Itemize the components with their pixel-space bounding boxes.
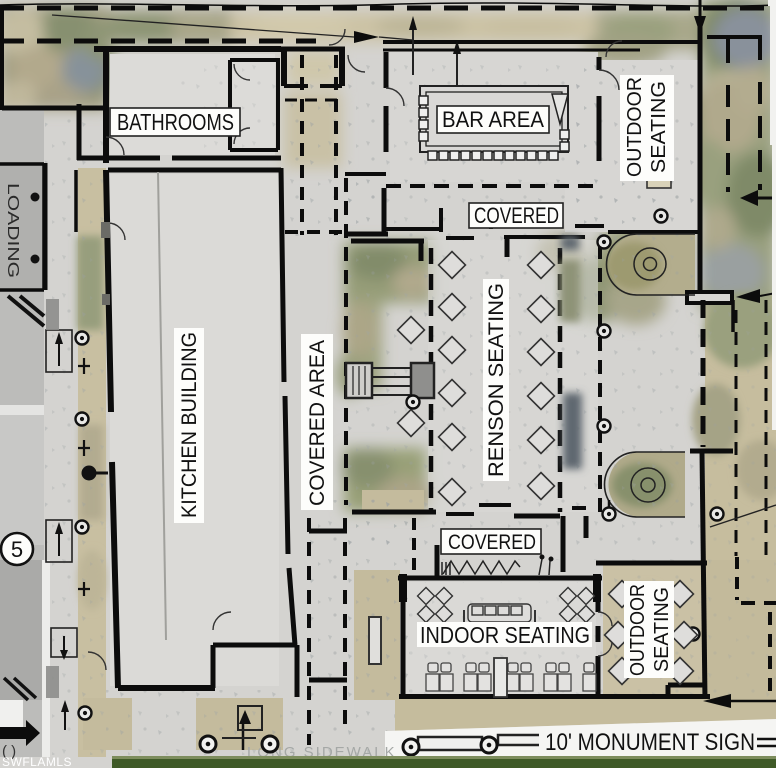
svg-text:SEATING: SEATING: [651, 587, 673, 672]
svg-text:RENSON SEATING: RENSON SEATING: [485, 283, 508, 477]
svg-text:COVERED: COVERED: [474, 203, 559, 228]
svg-text:OUTDOOR: OUTDOOR: [624, 77, 646, 177]
svg-text:LOADING: LOADING: [4, 183, 21, 278]
svg-text:COVERED: COVERED: [448, 531, 536, 554]
svg-text:10' MONUMENT SIGN: 10' MONUMENT SIGN: [545, 729, 755, 756]
svg-text:COVERED AREA: COVERED AREA: [306, 340, 329, 506]
svg-text:5: 5: [11, 537, 23, 562]
svg-text:SEATING: SEATING: [648, 81, 670, 173]
svg-text:SWFLAMLS: SWFLAMLS: [2, 755, 72, 768]
svg-text:KITCHEN BUILDING: KITCHEN BUILDING: [178, 332, 201, 518]
svg-text:OUTDOOR: OUTDOOR: [627, 584, 649, 676]
svg-text:BAR AREA: BAR AREA: [442, 107, 544, 132]
svg-text:INDOOR SEATING: INDOOR SEATING: [420, 622, 590, 648]
svg-text:BATHROOMS: BATHROOMS: [117, 109, 234, 135]
